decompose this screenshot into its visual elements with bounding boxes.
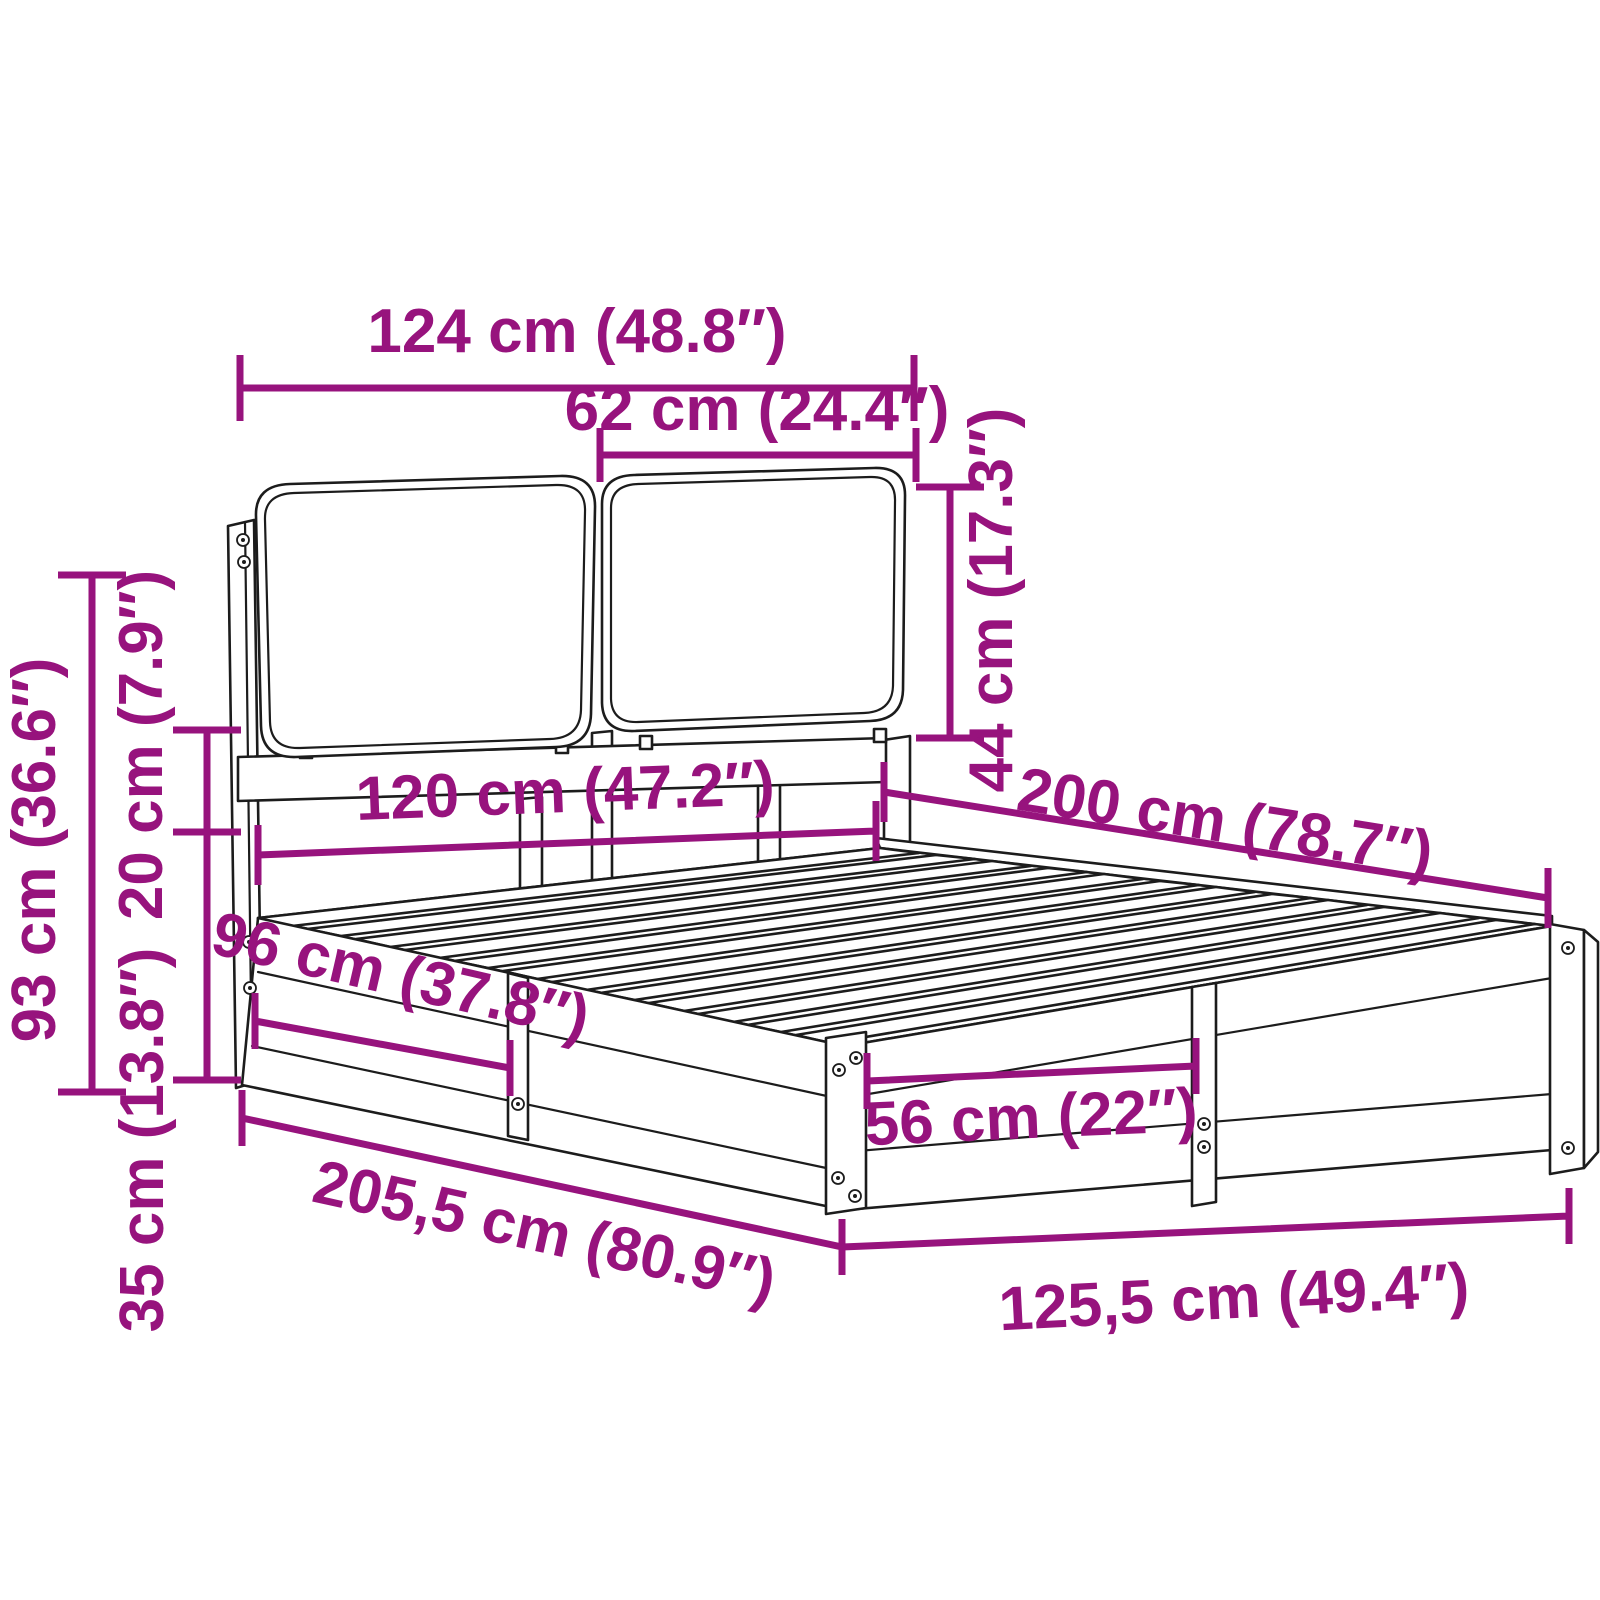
screw	[238, 556, 250, 568]
dim-cushion-width-label: 62 cm (24.4″)	[565, 375, 950, 444]
dim-headboard-gap-label: 20 cm (7.9″)	[107, 570, 176, 920]
screw	[832, 1172, 844, 1184]
dim-overall-width-label: 125,5 cm (49.4″)	[997, 1251, 1471, 1345]
dim-overall-width: 125,5 cm (49.4″)	[842, 1188, 1569, 1344]
dim-headboard-total-width-label: 124 cm (48.8″)	[367, 297, 786, 366]
dim-bed-width-label: 120 cm (47.2″)	[354, 749, 776, 834]
dim-headboard-height-label: 93 cm (36.6″)	[0, 658, 69, 1043]
screw	[849, 1190, 861, 1202]
screw	[244, 982, 256, 994]
screw	[1198, 1118, 1210, 1130]
dim-cushion-height: 44 cm (17.3″)	[916, 408, 1026, 793]
cushion-stub-4	[874, 729, 886, 742]
dim-frame-side-height-label: 35 cm (13.8″)	[108, 948, 177, 1333]
dim-cushion-width: 62 cm (24.4″)	[565, 375, 950, 482]
screw	[512, 1098, 524, 1110]
dim-cushion-height-label: 44 cm (17.3″)	[957, 408, 1026, 793]
screw	[1562, 1142, 1574, 1154]
diagram-canvas: 124 cm (48.8″) 62 cm (24.4″) 44 cm (17.3…	[0, 0, 1600, 1600]
screw	[237, 534, 249, 546]
screw	[833, 1064, 845, 1076]
dim-front-panel-label: 56 cm (22″)	[863, 1076, 1199, 1159]
screw	[1562, 942, 1574, 954]
left-cushion	[256, 476, 595, 757]
foot-end-sliver	[1584, 930, 1598, 1168]
screw	[850, 1052, 862, 1064]
cushion-stub-3	[640, 736, 652, 749]
screw	[1198, 1141, 1210, 1153]
right-cushion	[602, 468, 905, 731]
bed-dimension-diagram: 124 cm (48.8″) 62 cm (24.4″) 44 cm (17.3…	[0, 0, 1600, 1600]
foot-corner-post	[1550, 924, 1584, 1174]
dim-headboard-gap: 20 cm (7.9″)	[107, 570, 241, 920]
